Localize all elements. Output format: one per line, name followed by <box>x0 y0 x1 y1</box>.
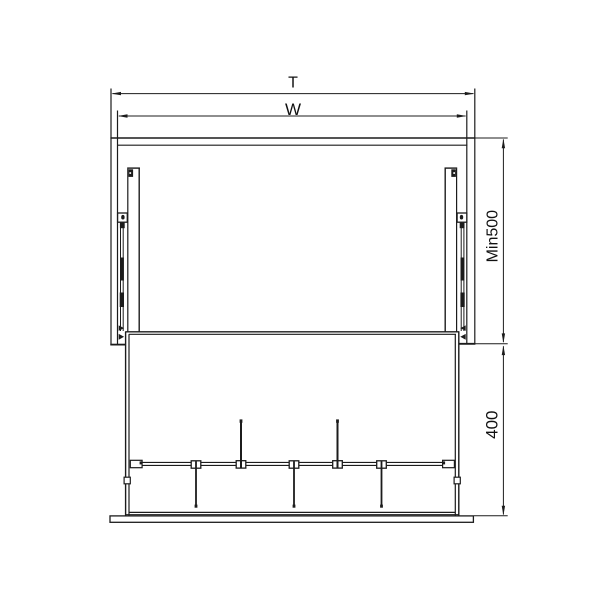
svg-text:T: T <box>288 74 298 91</box>
svg-text:Min500: Min500 <box>484 210 501 263</box>
svg-text:W: W <box>285 100 301 119</box>
svg-text:400: 400 <box>482 411 501 439</box>
